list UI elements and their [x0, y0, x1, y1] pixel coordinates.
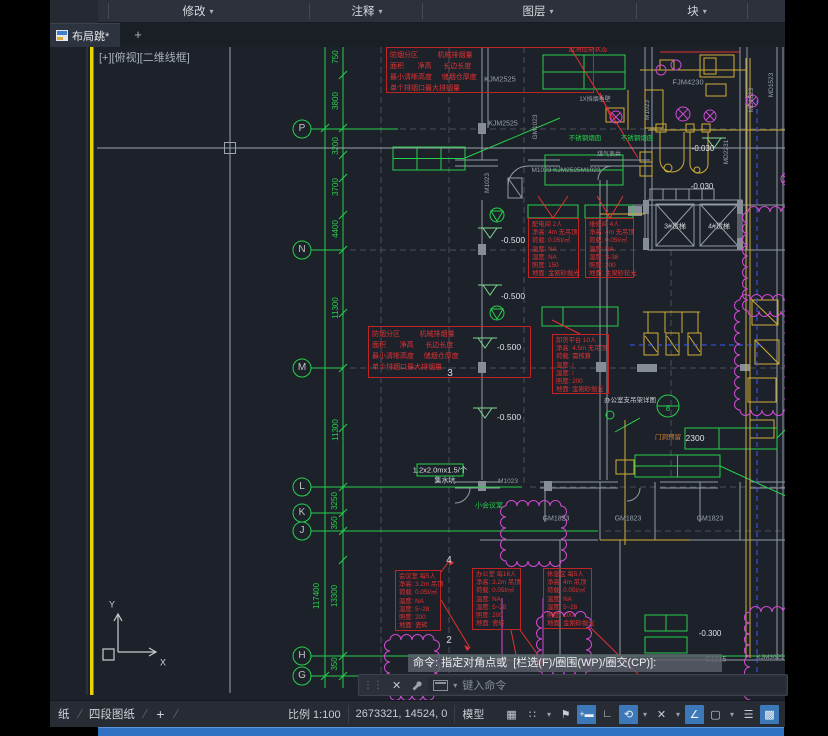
viewport-background[interactable]: [51, 47, 785, 700]
ortho-mode-icon[interactable]: ∟: [598, 705, 617, 724]
statusbar-tabs: 纸 / 四段图纸 / + /: [50, 701, 178, 727]
screen: PNMLKJHG34275038003200370044001130011300…: [0, 0, 828, 736]
hardware-acceleration-icon[interactable]: ▩: [760, 705, 779, 724]
command-window-icon[interactable]: [433, 680, 448, 691]
isodraft-icon[interactable]: ✕: [652, 705, 671, 724]
object-snap-tracking-icon[interactable]: ∠: [685, 705, 704, 724]
statusbar-separator: [454, 705, 455, 723]
layout-edge-line: [90, 47, 94, 695]
sheet-tab-four-segment[interactable]: 四段图纸: [81, 706, 143, 722]
chevron-down-icon[interactable]: ▾: [453, 681, 457, 690]
grid-display-icon[interactable]: ▦: [502, 705, 521, 724]
command-bar: ⋮⋮ ✕ ▾ 键入命令: [358, 674, 788, 696]
close-icon[interactable]: ✕: [387, 679, 406, 692]
command-placeholder: 键入命令: [462, 677, 506, 693]
chevron-down-icon[interactable]: ▾: [544, 705, 554, 724]
sheet-tab-partial[interactable]: 纸: [50, 706, 78, 722]
snap-flag-icon[interactable]: ⚑: [556, 705, 575, 724]
dynamic-input-icon[interactable]: +▬: [577, 705, 596, 724]
new-sheet-button[interactable]: +: [146, 706, 174, 722]
chevron-down-icon[interactable]: ▾: [673, 705, 683, 724]
snap-mode-icon[interactable]: ∷: [523, 705, 542, 724]
status-bar: 纸 / 四段图纸 / + / 比例 1:100 2673321, 14524, …: [50, 700, 785, 727]
statusbar-toggles: ▦ ∷ ▾ ⚑ +▬ ∟ ⟲ ▾ ✕ ▾ ∠ ▢ ▾ ☰ ▩: [502, 701, 779, 727]
scale-display[interactable]: 比例 1:100: [288, 706, 341, 722]
coordinates-display[interactable]: 2673321, 14524, 0: [356, 708, 448, 720]
command-history-line: 命令: 指定对角点或 [栏选(F)/圈围(WP)/圈交(CP)]:: [408, 654, 722, 672]
polar-tracking-icon[interactable]: ⟲: [619, 705, 638, 724]
statusbar-separator: [348, 705, 349, 723]
viewport-controls[interactable]: [+][俯视][二维线框]: [99, 49, 190, 65]
chevron-down-icon[interactable]: ▾: [640, 705, 650, 724]
command-input[interactable]: ▾ 键入命令: [428, 677, 785, 693]
statusbar-readouts: 比例 1:100 2673321, 14524, 0 模型: [288, 701, 484, 727]
lineweight-icon[interactable]: ☰: [739, 705, 758, 724]
taskbar-strip[interactable]: [98, 727, 784, 736]
object-snap-icon[interactable]: ▢: [706, 705, 725, 724]
cad-drawing-canvas[interactable]: [0, 0, 828, 736]
wrench-icon[interactable]: [406, 679, 426, 691]
command-bar-grip[interactable]: ⋮⋮: [359, 680, 387, 691]
chevron-down-icon[interactable]: ▾: [727, 705, 737, 724]
model-space-button[interactable]: 模型: [462, 706, 484, 722]
